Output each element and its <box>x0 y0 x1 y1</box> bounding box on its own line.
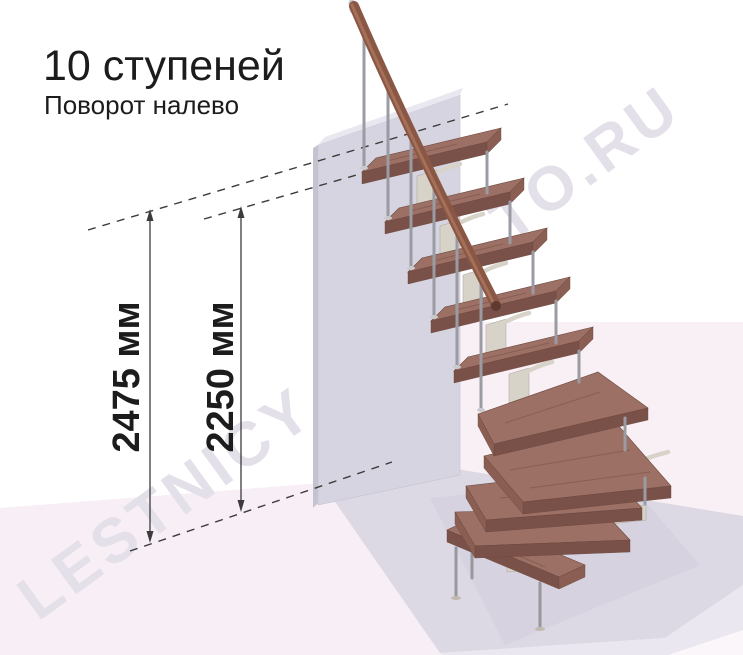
page-subtitle: Поворот налево <box>44 90 239 120</box>
dimension-label-2475: 2475 мм <box>106 301 148 452</box>
page-title: 10 ступеней <box>43 42 285 90</box>
dimension-label-2250: 2250 мм <box>200 301 242 452</box>
staircase-illustration: LESTNICY TO.RU <box>0 0 743 655</box>
staircase-diagram-page: LESTNICY TO.RU <box>0 0 743 655</box>
